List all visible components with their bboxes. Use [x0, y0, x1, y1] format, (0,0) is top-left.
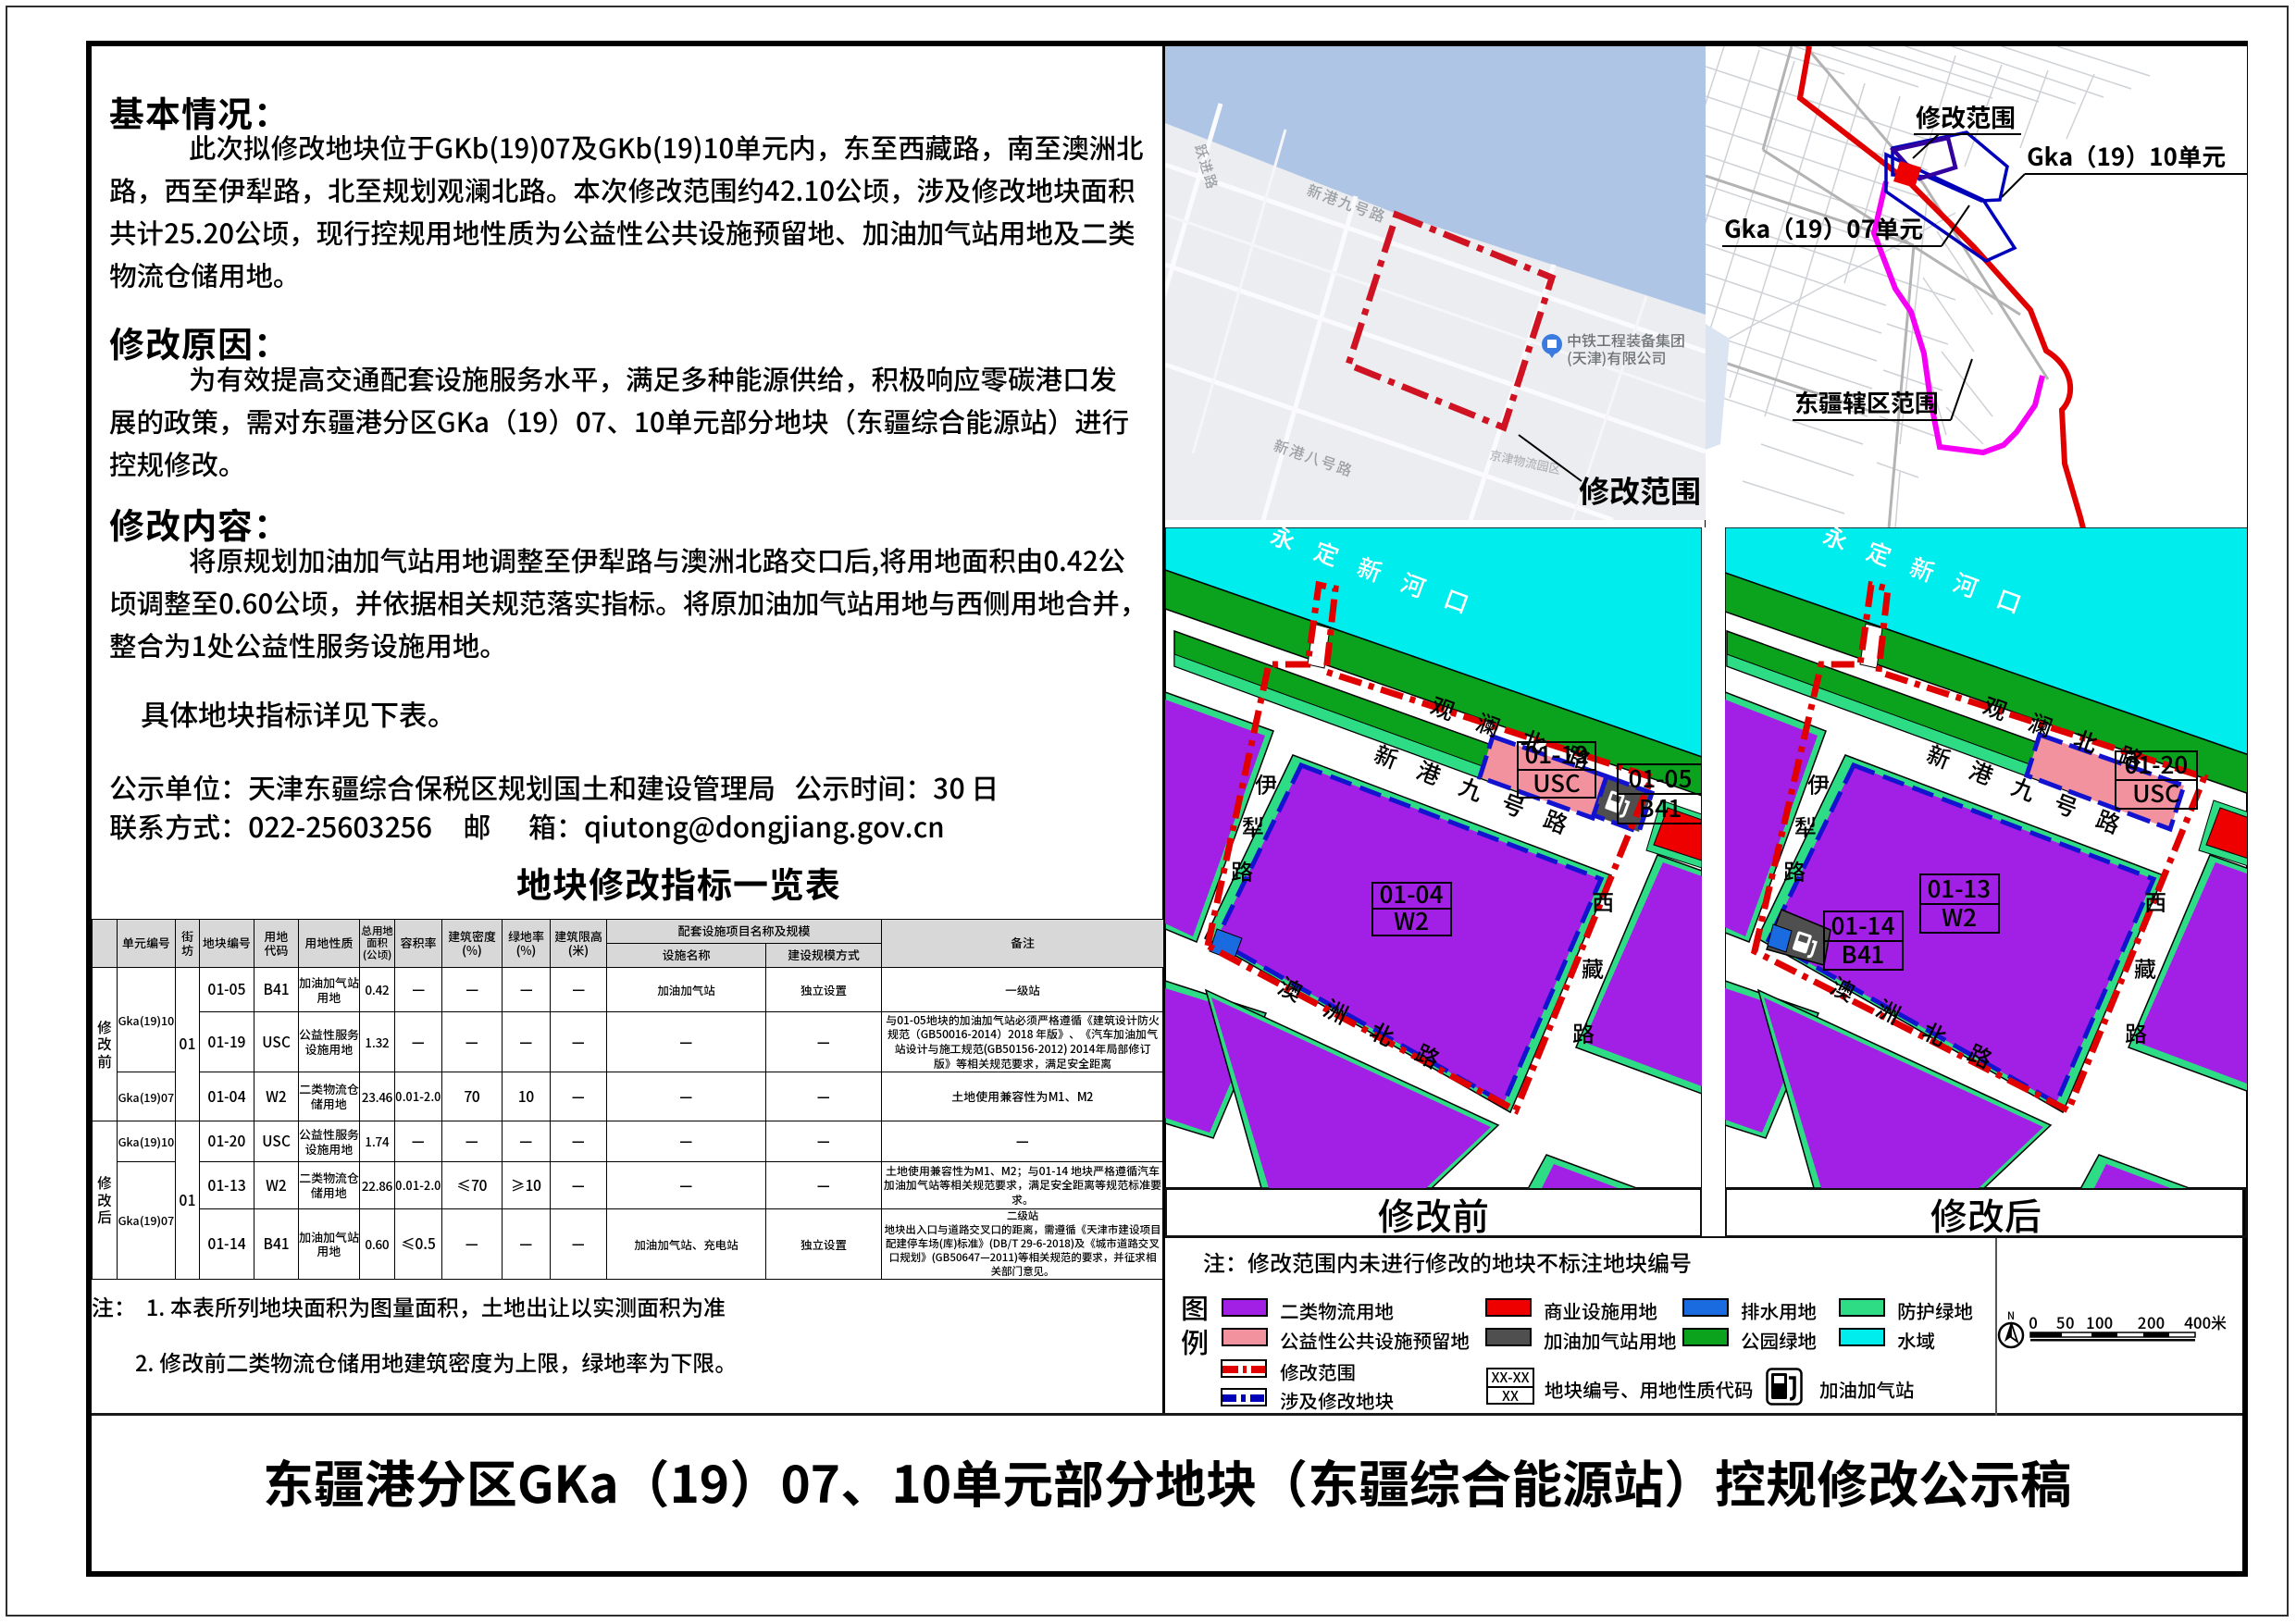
svg-text:西: 西	[1592, 885, 1614, 917]
svg-text:100: 100	[2086, 1310, 2113, 1333]
svg-text:藏: 藏	[1582, 951, 1604, 984]
svg-text:藏: 藏	[2134, 951, 2156, 984]
svg-text:(天津)有限公司: (天津)有限公司	[1567, 346, 1666, 368]
svg-text:路: 路	[1783, 854, 1806, 886]
svg-text:西: 西	[2144, 885, 2166, 917]
svg-text:400米: 400米	[2184, 1310, 2227, 1333]
svg-text:路: 路	[2125, 1016, 2147, 1048]
svg-text:USC: USC	[2132, 775, 2180, 810]
svg-text:犁: 犁	[1794, 810, 1817, 842]
svg-text:B41: B41	[1639, 790, 1682, 824]
svg-text:伊: 伊	[1807, 767, 1830, 799]
svg-text:W2: W2	[1942, 899, 1977, 934]
svg-text:200: 200	[2138, 1310, 2165, 1333]
svg-text:USC: USC	[1533, 765, 1581, 799]
svg-text:N: N	[2007, 1308, 2015, 1323]
svg-text:路: 路	[1231, 854, 1253, 886]
svg-text:修改范围: 修改范围	[1579, 467, 1701, 512]
svg-text:犁: 犁	[1242, 810, 1264, 842]
svg-text:0: 0	[2029, 1310, 2038, 1333]
svg-text:Gka（19）07单元: Gka（19）07单元	[1724, 211, 1923, 245]
svg-text:Gka（19）10单元: Gka（19）10单元	[2027, 139, 2226, 173]
svg-text:东疆辖区范围: 东疆辖区范围	[1794, 385, 1939, 419]
svg-text:W2: W2	[1394, 903, 1429, 937]
svg-text:50: 50	[2056, 1310, 2074, 1333]
svg-text:B41: B41	[1842, 936, 1885, 971]
svg-text:路: 路	[1572, 1016, 1595, 1048]
svg-text:修改范围: 修改范围	[1916, 98, 2016, 134]
svg-text:伊: 伊	[1255, 767, 1277, 799]
